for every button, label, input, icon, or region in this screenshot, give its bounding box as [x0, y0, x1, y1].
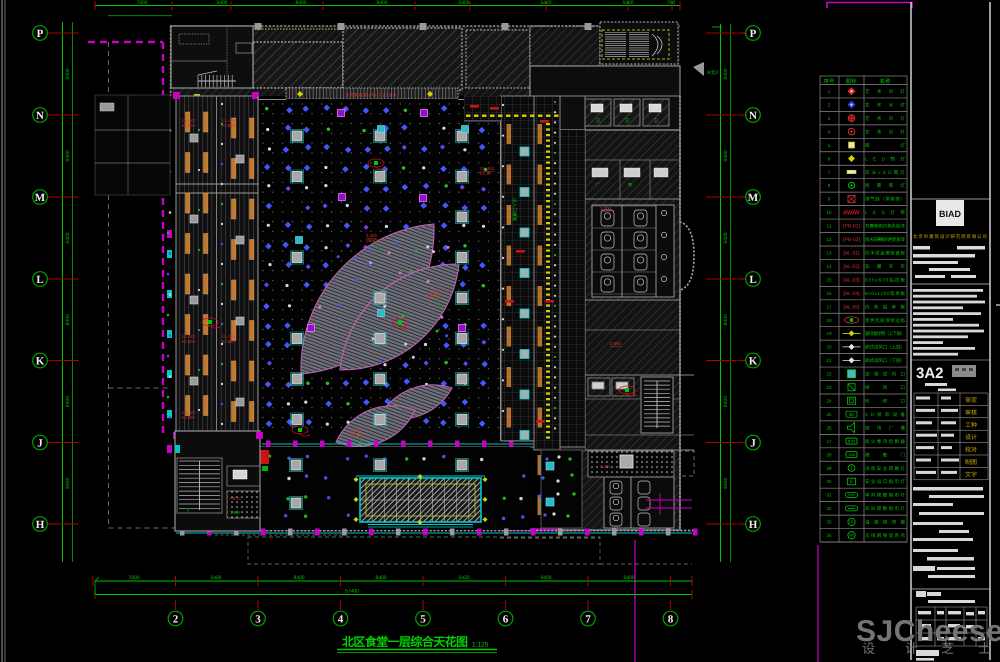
svg-text:8: 8: [828, 183, 831, 188]
svg-text:h2.850: h2.850: [182, 339, 195, 344]
svg-text:K: K: [749, 355, 758, 367]
svg-text:3D投影设备: 3D投影设备: [865, 412, 905, 417]
svg-text:8400: 8400: [65, 396, 71, 407]
svg-text:2: 2: [828, 103, 831, 108]
svg-text:5400: 5400: [210, 575, 221, 581]
svg-text:M: M: [748, 192, 759, 204]
svg-text:5: 5: [828, 143, 831, 148]
svg-text:600x1200铝单板: 600x1200铝单板: [865, 291, 905, 296]
svg-text:15: 15: [826, 277, 832, 282]
svg-text:无线网络信息点: 无线网络信息点: [865, 533, 905, 538]
svg-text:卫: 卫: [654, 118, 659, 123]
svg-text:北京市建筑设计研究院有限公司: 北京市建筑设计研究院有限公司: [913, 234, 987, 239]
svg-text:10: 10: [826, 210, 832, 215]
svg-text:库: 库: [628, 182, 632, 187]
svg-text:疏散门: 疏散门: [865, 452, 905, 457]
svg-text:士: 士: [978, 641, 991, 656]
svg-text:出入口通道: 出入口通道: [512, 198, 517, 221]
svg-text:PB-01: PB-01: [230, 496, 242, 501]
svg-text:h2.850: h2.850: [182, 415, 195, 420]
svg-text:7: 7: [585, 613, 591, 625]
svg-text:筒灯: 筒灯: [865, 143, 905, 148]
svg-text:厂: 厂: [596, 182, 600, 187]
svg-text:艺术吊灯: 艺术吊灯: [865, 116, 905, 121]
svg-text:[AL-02]: [AL-02]: [843, 264, 860, 270]
svg-text:3A2: 3A2: [916, 365, 944, 382]
svg-text:19: 19: [826, 331, 832, 336]
svg-text:仿木纹金属吸音板: 仿木纹金属吸音板: [865, 251, 905, 256]
svg-text:防雾筒灯: 防雾筒灯: [865, 183, 905, 188]
svg-text:窗帘盒详图（上下层）: 窗帘盒详图（上下层）: [865, 331, 905, 336]
svg-text:[AL-01]: [AL-01]: [843, 250, 860, 256]
svg-text:N: N: [36, 110, 44, 122]
svg-text:文字: 文字: [965, 470, 977, 478]
svg-text:排气扇（带装饰）: 排气扇（带装饰）: [865, 197, 905, 202]
svg-text:1: 1: [850, 466, 853, 471]
svg-text:BTM: BTM: [848, 439, 856, 443]
svg-text:2.850: 2.850: [610, 341, 622, 346]
svg-text:5420: 5420: [540, 0, 551, 6]
svg-text:32: 32: [826, 506, 832, 511]
svg-text:嵌式送风口（下层）: 嵌式送风口（下层）: [865, 358, 905, 363]
svg-text:吸顶广播: 吸顶广播: [865, 425, 905, 430]
svg-text:黑色乳胶漆修边角: 黑色乳胶漆修边角: [865, 318, 905, 323]
svg-text:单向疏散指示灯: 单向疏散指示灯: [865, 493, 905, 498]
svg-text:5400: 5400: [216, 0, 227, 6]
svg-text:31: 31: [826, 493, 832, 498]
svg-text:图标: 图标: [845, 78, 857, 85]
svg-text:6: 6: [828, 156, 831, 161]
svg-text:8400: 8400: [65, 68, 71, 79]
svg-text:[AL-04]: [AL-04]: [843, 291, 860, 297]
svg-text:8400: 8400: [65, 150, 71, 161]
svg-text:600x600铝扣板: 600x600铝扣板: [865, 277, 905, 282]
svg-text:[PB-02]: [PB-02]: [843, 237, 860, 243]
svg-text:12: 12: [826, 237, 832, 242]
svg-text:防水石膏板白色乳胶漆: 防水石膏板白色乳胶漆: [865, 237, 905, 242]
svg-text:3.300: 3.300: [600, 464, 611, 469]
svg-text:设计: 设计: [965, 433, 977, 441]
svg-text:1:125: 1:125: [472, 642, 489, 649]
svg-text:审核: 审核: [965, 408, 977, 416]
svg-text:检修口: 检修口: [865, 399, 905, 404]
svg-text:h2.850: h2.850: [222, 339, 235, 344]
svg-text:8400: 8400: [375, 575, 386, 581]
svg-text:北区食堂一层综合天花图: 北区食堂一层综合天花图: [342, 635, 468, 649]
svg-text:消防安全疏散灯: 消防安全疏散灯: [865, 466, 905, 471]
svg-text:1: 1: [828, 89, 831, 94]
svg-text:艺术吊灯: 艺术吊灯: [865, 103, 905, 108]
svg-text:4: 4: [338, 613, 344, 625]
svg-text:双向疏散指示灯: 双向疏散指示灯: [865, 506, 905, 511]
svg-text:h2.850: h2.850: [222, 123, 235, 128]
svg-text:H: H: [749, 519, 758, 531]
svg-text:嵌式送风口（上层）: 嵌式送风口（上层）: [865, 345, 905, 350]
svg-text:4: 4: [828, 129, 831, 134]
svg-text:天花乳胶漆 [PB-01] 3.300: 天花乳胶漆 [PB-01] 3.300: [345, 93, 397, 98]
svg-text:白色铝单板: 白色铝单板: [865, 304, 905, 309]
svg-text:工种: 工种: [965, 421, 977, 429]
svg-text:16: 16: [826, 291, 832, 296]
svg-text:L: L: [36, 274, 43, 286]
svg-text:N: N: [749, 110, 757, 122]
svg-text:P: P: [750, 28, 757, 40]
svg-text:H: H: [36, 519, 45, 531]
svg-text:8: 8: [668, 613, 674, 625]
svg-text:20: 20: [826, 345, 832, 350]
svg-text:2.800: 2.800: [230, 510, 241, 515]
svg-text:校对: 校对: [965, 446, 977, 454]
svg-text:8400: 8400: [723, 396, 729, 407]
svg-text:[AL-03]: [AL-03]: [843, 277, 860, 283]
svg-text:艺术吊灯: 艺术吊灯: [865, 89, 905, 94]
svg-text:2: 2: [173, 613, 179, 625]
svg-text:8400: 8400: [723, 232, 729, 243]
svg-text:13: 13: [826, 251, 832, 256]
svg-text:审定: 审定: [965, 396, 977, 404]
svg-text:防火卷帘控制器: 防火卷帘控制器: [865, 439, 905, 444]
svg-text:[PB-01]: [PB-01]: [843, 224, 860, 230]
svg-text:8400: 8400: [723, 68, 729, 79]
svg-text:8400: 8400: [65, 477, 71, 488]
svg-text:17: 17: [826, 304, 832, 309]
svg-text:30: 30: [826, 479, 832, 484]
svg-text:J: J: [750, 437, 756, 449]
svg-text:LED灯带: LED灯带: [865, 210, 905, 215]
svg-text:11: 11: [827, 224, 832, 229]
svg-text:29: 29: [826, 466, 832, 471]
svg-text:8400: 8400: [723, 477, 729, 488]
svg-text:HT: HT: [849, 520, 854, 524]
svg-text:安全出口指示灯: 安全出口指示灯: [865, 479, 905, 484]
svg-text:艺术吊灯: 艺术吊灯: [865, 129, 905, 134]
svg-text:石膏板刷白色乳胶漆: 石膏板刷白色乳胶漆: [865, 224, 905, 229]
svg-text:[AL-05]: [AL-05]: [843, 304, 860, 310]
svg-text:700: 700: [667, 0, 676, 6]
svg-text:8400: 8400: [376, 0, 387, 6]
svg-text:BIAD: BIAD: [939, 209, 961, 219]
svg-text:8400: 8400: [65, 314, 71, 325]
svg-text:E: E: [850, 479, 853, 484]
svg-text:M: M: [35, 192, 46, 204]
svg-text:22: 22: [826, 372, 832, 377]
svg-text:57400: 57400: [345, 589, 359, 595]
svg-text:P: P: [37, 28, 44, 40]
svg-text:7000: 7000: [136, 0, 147, 6]
svg-text:温感探测器: 温感探测器: [865, 520, 905, 525]
svg-text:设: 设: [862, 641, 875, 656]
svg-text:h3.30: h3.30: [480, 171, 492, 176]
svg-text:9400: 9400: [540, 575, 551, 581]
svg-text:7000: 7000: [128, 575, 139, 581]
svg-text:软膜天花: 软膜天花: [865, 264, 905, 269]
svg-text:制图: 制图: [965, 458, 977, 466]
svg-text:8400: 8400: [723, 314, 729, 325]
svg-text:LED筒灯: LED筒灯: [865, 156, 905, 161]
svg-text:26: 26: [826, 425, 832, 430]
svg-text:14: 14: [826, 264, 832, 269]
svg-text:JXM: JXM: [848, 453, 855, 457]
svg-text:8400: 8400: [293, 575, 304, 581]
svg-text:9: 9: [828, 197, 831, 202]
svg-text:J: J: [37, 437, 43, 449]
svg-text:卫: 卫: [625, 118, 630, 123]
svg-text:27: 27: [826, 439, 832, 444]
svg-text:L: L: [749, 274, 756, 286]
svg-text:5400: 5400: [623, 575, 634, 581]
svg-text:K: K: [36, 355, 45, 367]
svg-text:A北2: A北2: [707, 69, 718, 76]
svg-text:3: 3: [828, 116, 831, 121]
svg-text:空调送风口: 空调送风口: [865, 372, 905, 377]
svg-text:24: 24: [826, 399, 832, 404]
svg-text:h2.850: h2.850: [182, 123, 195, 128]
svg-text:排风口: 排风口: [865, 385, 905, 390]
svg-text:6: 6: [503, 613, 509, 625]
svg-text:5400: 5400: [458, 0, 469, 6]
svg-text:芝: 芝: [941, 641, 954, 656]
svg-text:卫: 卫: [596, 118, 601, 123]
svg-text:5400: 5400: [622, 0, 633, 6]
svg-text:21: 21: [826, 358, 832, 363]
svg-text:名称: 名称: [879, 78, 891, 85]
svg-text:AP: AP: [849, 534, 854, 538]
svg-text:23: 23: [826, 385, 832, 390]
svg-text:下: 下: [185, 508, 190, 514]
svg-text:18: 18: [826, 318, 832, 323]
svg-text:5: 5: [420, 613, 426, 625]
svg-text:3D: 3D: [849, 412, 855, 417]
svg-text:33: 33: [826, 520, 832, 525]
svg-text:3: 3: [255, 613, 261, 625]
svg-text:双头LED筒灯: 双头LED筒灯: [865, 170, 905, 175]
svg-text:3.300: 3.300: [600, 206, 612, 211]
svg-text:5420: 5420: [458, 575, 469, 581]
svg-text:8400: 8400: [65, 232, 71, 243]
svg-text:序号: 序号: [823, 78, 835, 85]
svg-text:计: 计: [905, 641, 918, 656]
svg-text:34: 34: [826, 533, 832, 538]
svg-text:28: 28: [826, 452, 832, 457]
svg-text:25: 25: [826, 412, 832, 417]
svg-text:8400: 8400: [295, 0, 306, 6]
svg-text:8400: 8400: [723, 150, 729, 161]
svg-text:7: 7: [828, 170, 831, 175]
